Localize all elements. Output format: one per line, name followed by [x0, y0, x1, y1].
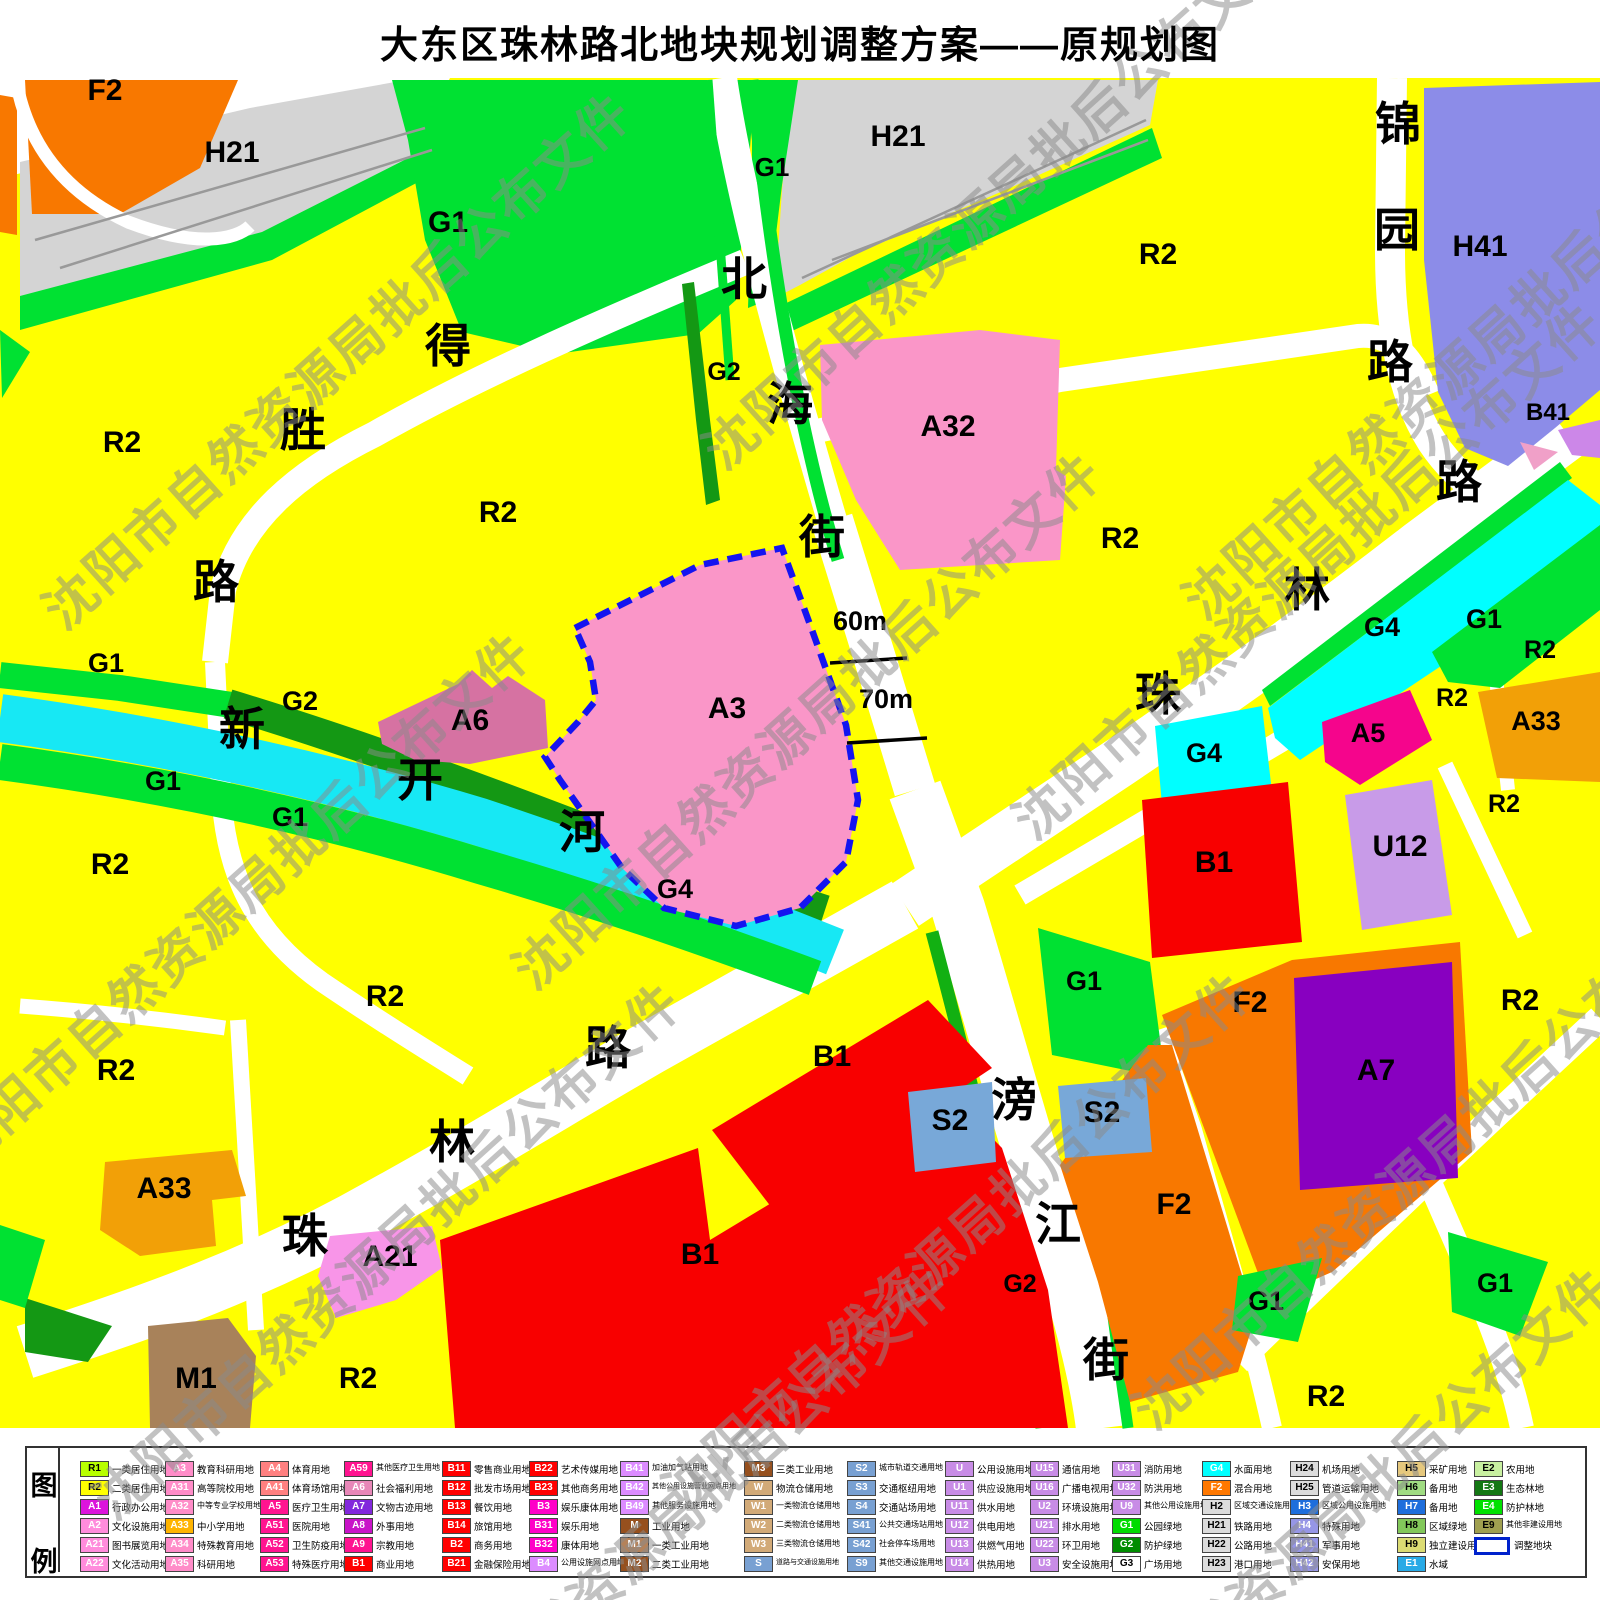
legend-label: 康体用地: [561, 1538, 599, 1552]
road-name-char: 路: [1436, 456, 1483, 508]
legend-swatch: G1: [1112, 1518, 1141, 1534]
zone-label-G4: G4: [1186, 738, 1222, 768]
road-name-char: 海: [767, 378, 813, 430]
legend-label: 中小学用地: [197, 1519, 245, 1533]
legend-label: 其他非建设用地: [1506, 1519, 1562, 1530]
legend-swatch: A22: [80, 1556, 109, 1572]
zone-label-A32: A32: [920, 410, 975, 443]
zone-label-R2: R2: [1501, 984, 1539, 1017]
legend-swatch: H5: [1397, 1461, 1426, 1477]
legend-swatch: A5: [260, 1499, 289, 1515]
legend-swatch: A52: [260, 1537, 289, 1553]
zone-label-R2: R2: [1488, 790, 1520, 818]
road-name-char: 得: [425, 320, 471, 372]
legend-label: 特殊用地: [1322, 1519, 1360, 1533]
legend-label: 卫生防疫用地: [292, 1538, 349, 1552]
zone-label-R2: R2: [366, 980, 404, 1013]
legend-swatch: U1: [945, 1480, 974, 1496]
zone-label-R2: R2: [479, 496, 517, 529]
legend-swatch: H21: [1202, 1518, 1231, 1534]
zone-label-B1: B1: [681, 1238, 719, 1271]
legend-swatch: F2: [1202, 1480, 1231, 1496]
planning-map: F2H21G1G1H21R2H41B41R2R2A32R2G2G2G1G1G1A…: [0, 0, 1600, 1600]
legend-swatch: H9: [1397, 1537, 1426, 1553]
legend-swatch: M2: [620, 1556, 649, 1572]
legend-swatch: B2: [442, 1537, 471, 1553]
legend-swatch: H4: [1290, 1518, 1319, 1534]
legend-swatch: H3: [1290, 1499, 1319, 1515]
legend-swatch: B31: [529, 1518, 558, 1534]
legend-swatch: U2: [1030, 1499, 1059, 1515]
legend-label: 消防用地: [1144, 1462, 1182, 1476]
zone-label-R2: R2: [91, 848, 129, 881]
legend-swatch: E4: [1474, 1499, 1503, 1515]
legend-label: 其他公用设施营业网点用地: [652, 1481, 736, 1491]
zone-label-G1: G1: [1066, 966, 1102, 996]
legend-swatch: A31: [165, 1480, 194, 1496]
legend-swatch: A2: [80, 1518, 109, 1534]
legend-swatch: U9: [1112, 1499, 1141, 1515]
legend-label: 体育场馆用地: [292, 1481, 349, 1495]
legend-label: 三类工业用地: [776, 1462, 833, 1476]
legend-label: 旅馆用地: [474, 1519, 512, 1533]
legend-swatch: A7: [344, 1499, 373, 1515]
legend-swatch: B12: [442, 1480, 471, 1496]
legend-label: 社会福利用地: [376, 1481, 433, 1495]
legend-label: 城市轨道交通用地: [879, 1462, 943, 1473]
dimension-label: 70m: [859, 684, 913, 714]
legend-label: 其他医疗卫生用地: [376, 1462, 440, 1473]
legend-swatch: U32: [1112, 1480, 1141, 1496]
legend-swatch: U3: [1030, 1556, 1059, 1572]
legend-label: 高等院校用地: [197, 1481, 254, 1495]
legend-label: 外事用地: [376, 1519, 414, 1533]
legend-title-char-1: 图: [29, 1464, 59, 1503]
legend-swatch: U31: [1112, 1461, 1141, 1477]
road-name-char: 锦: [1375, 98, 1421, 150]
legend-swatch: U21: [1030, 1518, 1059, 1534]
road-name-char: 胜: [280, 404, 326, 456]
legend-label: 医院用地: [292, 1519, 330, 1533]
legend-swatch: E2: [1474, 1461, 1503, 1477]
legend-swatch: U16: [1030, 1480, 1059, 1496]
legend-swatch: H41: [1290, 1537, 1319, 1553]
zone-label-R2: R2: [1307, 1380, 1345, 1413]
zone-label-S2: S2: [932, 1104, 969, 1137]
zone-label-H21: H21: [870, 120, 925, 153]
zone-label-R2: R2: [97, 1054, 135, 1087]
legend-swatch: H2: [1202, 1499, 1231, 1515]
legend-swatch: S42: [847, 1537, 876, 1553]
legend-swatch: H7: [1397, 1499, 1426, 1515]
legend-label: 特殊教育用地: [197, 1538, 254, 1552]
zone-label-F2: F2: [1232, 986, 1267, 1019]
zone-label-H21: H21: [204, 136, 259, 169]
legend-swatch: B22: [529, 1461, 558, 1477]
zone-label-G4: G4: [657, 874, 693, 904]
legend-title-char-2: 例: [29, 1540, 59, 1579]
zone-label-R2: R2: [339, 1362, 377, 1395]
legend-swatch: B41: [620, 1461, 649, 1477]
legend-label: 公用设施用地: [977, 1462, 1034, 1476]
road-name-char: 路: [193, 556, 240, 608]
legend-swatch: G2: [1112, 1537, 1141, 1553]
legend-label: 文化设施用地: [112, 1519, 169, 1533]
legend-swatch: A34: [165, 1537, 194, 1553]
zone-label-G1: G1: [1466, 604, 1502, 634]
legend-label: 防护林地: [1506, 1500, 1544, 1514]
zone-label-G1: G1: [88, 648, 124, 678]
dimension-label: 60m: [833, 606, 887, 636]
road-name-char: 路: [585, 1022, 632, 1074]
legend-label: 供电用地: [977, 1519, 1015, 1533]
legend-label: 商务用地: [474, 1538, 512, 1552]
legend-label: 物流仓储用地: [776, 1481, 833, 1495]
legend-swatch: B23: [529, 1480, 558, 1496]
legend-swatch: R1: [80, 1461, 109, 1477]
zone-label-R2: R2: [103, 426, 141, 459]
legend-label: 供应设施用地: [977, 1481, 1034, 1495]
legend-label: 行政办公用地: [112, 1500, 169, 1514]
legend-label: 餐饮用地: [474, 1500, 512, 1514]
road-name-char: 北: [721, 253, 767, 305]
legend-label: 一类工业用地: [652, 1538, 709, 1552]
legend-label: 混合用地: [1234, 1481, 1272, 1495]
legend-label: 零售商业用地: [474, 1462, 531, 1476]
zone-label-G1: G1: [1248, 1286, 1284, 1316]
legend-swatch: A1: [80, 1499, 109, 1515]
legend-label: 中等专业学校用地: [197, 1500, 261, 1511]
legend-swatch: W2: [744, 1518, 773, 1534]
legend-label: 教育科研用地: [197, 1462, 254, 1476]
legend-swatch: B42: [620, 1480, 649, 1496]
legend-label: 二类居住用地: [112, 1481, 169, 1495]
zone-label-G2: G2: [282, 686, 318, 716]
zone-label-A7: A7: [1357, 1054, 1395, 1087]
legend-swatch: M1: [620, 1537, 649, 1553]
road-name-char: 新: [219, 703, 265, 755]
legend-swatch: B13: [442, 1499, 471, 1515]
legend-label: 文物古迹用地: [376, 1500, 433, 1514]
legend-label: 环卫用地: [1062, 1538, 1100, 1552]
legend-label: 备用地: [1429, 1500, 1458, 1514]
legend-label: 二类物流仓储用地: [776, 1519, 840, 1530]
zone-label-B1: B1: [813, 1040, 851, 1073]
legend-label: 金融保险用地: [474, 1557, 531, 1571]
legend-swatch: S3: [847, 1480, 876, 1496]
legend-swatch: H22: [1202, 1537, 1231, 1553]
legend-swatch: A3: [165, 1461, 194, 1477]
legend-swatch: A9: [344, 1537, 373, 1553]
legend-label: 娱乐用地: [561, 1519, 599, 1533]
road-name-char: 江: [1035, 1198, 1081, 1250]
legend-swatch: M3: [744, 1461, 773, 1477]
legend-label: 娱乐康体用地: [561, 1500, 618, 1514]
zone-label-M1: M1: [175, 1362, 217, 1395]
zone-label-G4: G4: [1364, 612, 1400, 642]
zone-label-G1: G1: [1477, 1268, 1513, 1298]
zone-label-A3: A3: [708, 692, 746, 725]
legend-swatch: G3: [1112, 1556, 1141, 1572]
legend-label: 一类居住用地: [112, 1462, 169, 1476]
legend-label: 农用地: [1506, 1462, 1535, 1476]
legend-swatch: E9: [1474, 1518, 1503, 1534]
legend-label: 供燃气用地: [977, 1538, 1025, 1552]
legend-label: 一类物流仓储用地: [776, 1500, 840, 1511]
legend-label: 采矿用地: [1429, 1462, 1467, 1476]
legend-swatch: B49: [620, 1499, 649, 1515]
legend-swatch: W3: [744, 1537, 773, 1553]
legend-label: 管道运输用地: [1322, 1481, 1379, 1495]
legend-label: 备用地: [1429, 1481, 1458, 1495]
road-name-char: 园: [1374, 204, 1420, 256]
legend-swatch: H42: [1290, 1556, 1319, 1572]
legend-label: 铁路用地: [1234, 1519, 1272, 1533]
legend-swatch: S4: [847, 1499, 876, 1515]
legend-swatch: A32: [165, 1499, 194, 1515]
legend-swatch: [1474, 1537, 1510, 1555]
legend-label: 文化活动用地: [112, 1557, 169, 1571]
zone-label-R2: R2: [1436, 684, 1468, 712]
legend-label: 道路与交通设施用地: [776, 1557, 839, 1567]
legend-label: 其他交通设施用地: [879, 1557, 943, 1568]
legend-swatch: B32: [529, 1537, 558, 1553]
legend-swatch: A41: [260, 1480, 289, 1496]
zone-label-B1: B1: [1195, 846, 1233, 879]
zone-label-S2: S2: [1084, 1096, 1121, 1129]
legend-swatch: A4: [260, 1461, 289, 1477]
zone-label-B41: B41: [1526, 399, 1570, 426]
legend-label: 交通枢纽用地: [879, 1481, 936, 1495]
legend-label: 安保用地: [1322, 1557, 1360, 1571]
planning-map-page: 大东区珠林路北地块规划调整方案——原规划图 F2H21G1G1H21R2H41B…: [0, 0, 1600, 1600]
legend-swatch: W1: [744, 1499, 773, 1515]
legend-swatch: H6: [1397, 1480, 1426, 1496]
legend-swatch: A6: [344, 1480, 373, 1496]
legend-label: 公用设施网点用地: [561, 1557, 625, 1568]
legend-swatch: H8: [1397, 1518, 1426, 1534]
legend-swatch: S: [744, 1556, 773, 1572]
legend-swatch: W: [744, 1480, 773, 1496]
legend-swatch: A35: [165, 1556, 194, 1572]
legend-swatch: H24: [1290, 1461, 1319, 1477]
zone-label-U12: U12: [1372, 830, 1427, 863]
legend-label: 通信用地: [1062, 1462, 1100, 1476]
legend-swatch: G4: [1202, 1461, 1231, 1477]
legend-label: 交通站场用地: [879, 1500, 936, 1514]
legend-swatch: U: [945, 1461, 974, 1477]
legend-swatch: E1: [1397, 1556, 1426, 1572]
legend-swatch: A51: [260, 1518, 289, 1534]
legend-label: 区域绿地: [1429, 1519, 1467, 1533]
road-name-char: 街: [1082, 1334, 1129, 1386]
legend-label: 医疗卫生用地: [292, 1500, 349, 1514]
road-name-char: 河: [559, 806, 605, 858]
legend-swatch: A8: [344, 1518, 373, 1534]
zone-label-F2: F2: [1156, 1188, 1191, 1221]
zone-label-R2: R2: [1524, 636, 1556, 664]
legend-swatch: A59: [344, 1461, 373, 1477]
legend-label: 图书展览用地: [112, 1538, 169, 1552]
legend-label: 港口用地: [1234, 1557, 1272, 1571]
legend-label: 水面用地: [1234, 1462, 1272, 1476]
road-name-char: 街: [798, 511, 845, 563]
legend-swatch: B3: [529, 1499, 558, 1515]
legend: 图 例 R1一类居住用地R2二类居住用地A1行政办公用地A2文化设施用地A21图…: [25, 1446, 1587, 1578]
zone-label-A6: A6: [451, 704, 489, 737]
page-title: 大东区珠林路北地块规划调整方案——原规划图: [0, 14, 1600, 69]
legend-label: 公园绿地: [1144, 1519, 1182, 1533]
legend-swatch: U22: [1030, 1537, 1059, 1553]
legend-label: 特殊医疗用地: [292, 1557, 349, 1571]
legend-label: 公共交通场站用地: [879, 1519, 943, 1530]
legend-swatch: A53: [260, 1556, 289, 1572]
legend-label: 区域公用设施用地: [1322, 1500, 1386, 1511]
legend-label: 供水用地: [977, 1500, 1015, 1514]
legend-label: 排水用地: [1062, 1519, 1100, 1533]
legend-swatch: B14: [442, 1518, 471, 1534]
legend-swatch: U12: [945, 1518, 974, 1534]
zone-label-A33: A33: [1511, 706, 1561, 736]
legend-swatch: A33: [165, 1518, 194, 1534]
zone-label-G1: G1: [755, 152, 790, 182]
parcel-h41: [1424, 82, 1600, 466]
road-name-char: 林: [1284, 564, 1330, 616]
legend-label: 社会停车场用地: [879, 1538, 935, 1549]
zone-label-G2: G2: [707, 358, 740, 386]
legend-label: 工业用地: [652, 1519, 690, 1533]
legend-swatch: S41: [847, 1518, 876, 1534]
zone-label-A33: A33: [136, 1172, 191, 1205]
zone-label-H41: H41: [1452, 230, 1507, 263]
parcel-f2-sliver: [0, 95, 17, 235]
legend-label: 体育用地: [292, 1462, 330, 1476]
legend-label: 防护绿地: [1144, 1538, 1182, 1552]
road-name-char: 林: [429, 1116, 475, 1168]
legend-label: 商业用地: [376, 1557, 414, 1571]
road-name-char: 路: [1367, 336, 1414, 388]
legend-swatch: U15: [1030, 1461, 1059, 1477]
road-name-char: 开: [397, 754, 443, 806]
legend-label: 宗教用地: [376, 1538, 414, 1552]
legend-swatch: B4: [529, 1556, 558, 1572]
legend-label: 三类物流仓储用地: [776, 1538, 840, 1549]
zone-label-F2: F2: [87, 74, 122, 107]
legend-label: 其他商务用地: [561, 1481, 618, 1495]
legend-label: 环境设施用地: [1062, 1500, 1119, 1514]
legend-label: 加油加气站用地: [652, 1462, 708, 1473]
legend-label: 机场用地: [1322, 1462, 1360, 1476]
legend-label: 广播电视用地: [1062, 1481, 1119, 1495]
zone-label-G1: G1: [428, 206, 468, 239]
legend-swatch: S2: [847, 1461, 876, 1477]
legend-swatch: B1: [344, 1556, 373, 1572]
road-name-char: 珠: [1135, 668, 1182, 720]
legend-swatch: A21: [80, 1537, 109, 1553]
legend-swatch: E3: [1474, 1480, 1503, 1496]
road-name-char: 珠: [282, 1210, 329, 1262]
legend-label: 区域交通设施用地: [1234, 1500, 1298, 1511]
legend-swatch: H25: [1290, 1480, 1319, 1496]
legend-swatch: H23: [1202, 1556, 1231, 1572]
legend-label: 其他服务设施用地: [652, 1500, 716, 1511]
legend-label: 军事用地: [1322, 1538, 1360, 1552]
legend-label: 公路用地: [1234, 1538, 1272, 1552]
legend-label: 安全设施用地: [1062, 1557, 1119, 1571]
zone-label-G1: G1: [145, 766, 181, 796]
legend-label: 广场用地: [1144, 1557, 1182, 1571]
zone-label-A5: A5: [1351, 718, 1386, 748]
zone-label-R2: R2: [1101, 522, 1139, 555]
legend-label: 生态林地: [1506, 1481, 1544, 1495]
legend-swatch: U14: [945, 1556, 974, 1572]
legend-label: 防洪用地: [1144, 1481, 1182, 1495]
zone-label-G1: G1: [272, 802, 308, 832]
road-name-char: 滂: [991, 1074, 1037, 1126]
legend-swatch: S9: [847, 1556, 876, 1572]
legend-swatch: M: [620, 1518, 649, 1534]
legend-swatch: U11: [945, 1499, 974, 1515]
legend-swatch: B21: [442, 1556, 471, 1572]
legend-label: 供热用地: [977, 1557, 1015, 1571]
legend-swatch: U13: [945, 1537, 974, 1553]
legend-label: 艺术传媒用地: [561, 1462, 618, 1476]
legend-label: 其他公用设施用地: [1144, 1500, 1208, 1511]
legend-label: 批发市场用地: [474, 1481, 531, 1495]
zone-label-R2: R2: [1139, 238, 1177, 271]
zone-label-G2: G2: [1003, 1270, 1036, 1298]
legend-label: 二类工业用地: [652, 1557, 709, 1571]
legend-label: 水域: [1429, 1557, 1448, 1571]
legend-swatch: R2: [80, 1480, 109, 1496]
zone-label-A21: A21: [362, 1240, 417, 1273]
legend-label: 科研用地: [197, 1557, 235, 1571]
legend-swatch: B11: [442, 1461, 471, 1477]
legend-label: 调整地块: [1514, 1538, 1552, 1552]
